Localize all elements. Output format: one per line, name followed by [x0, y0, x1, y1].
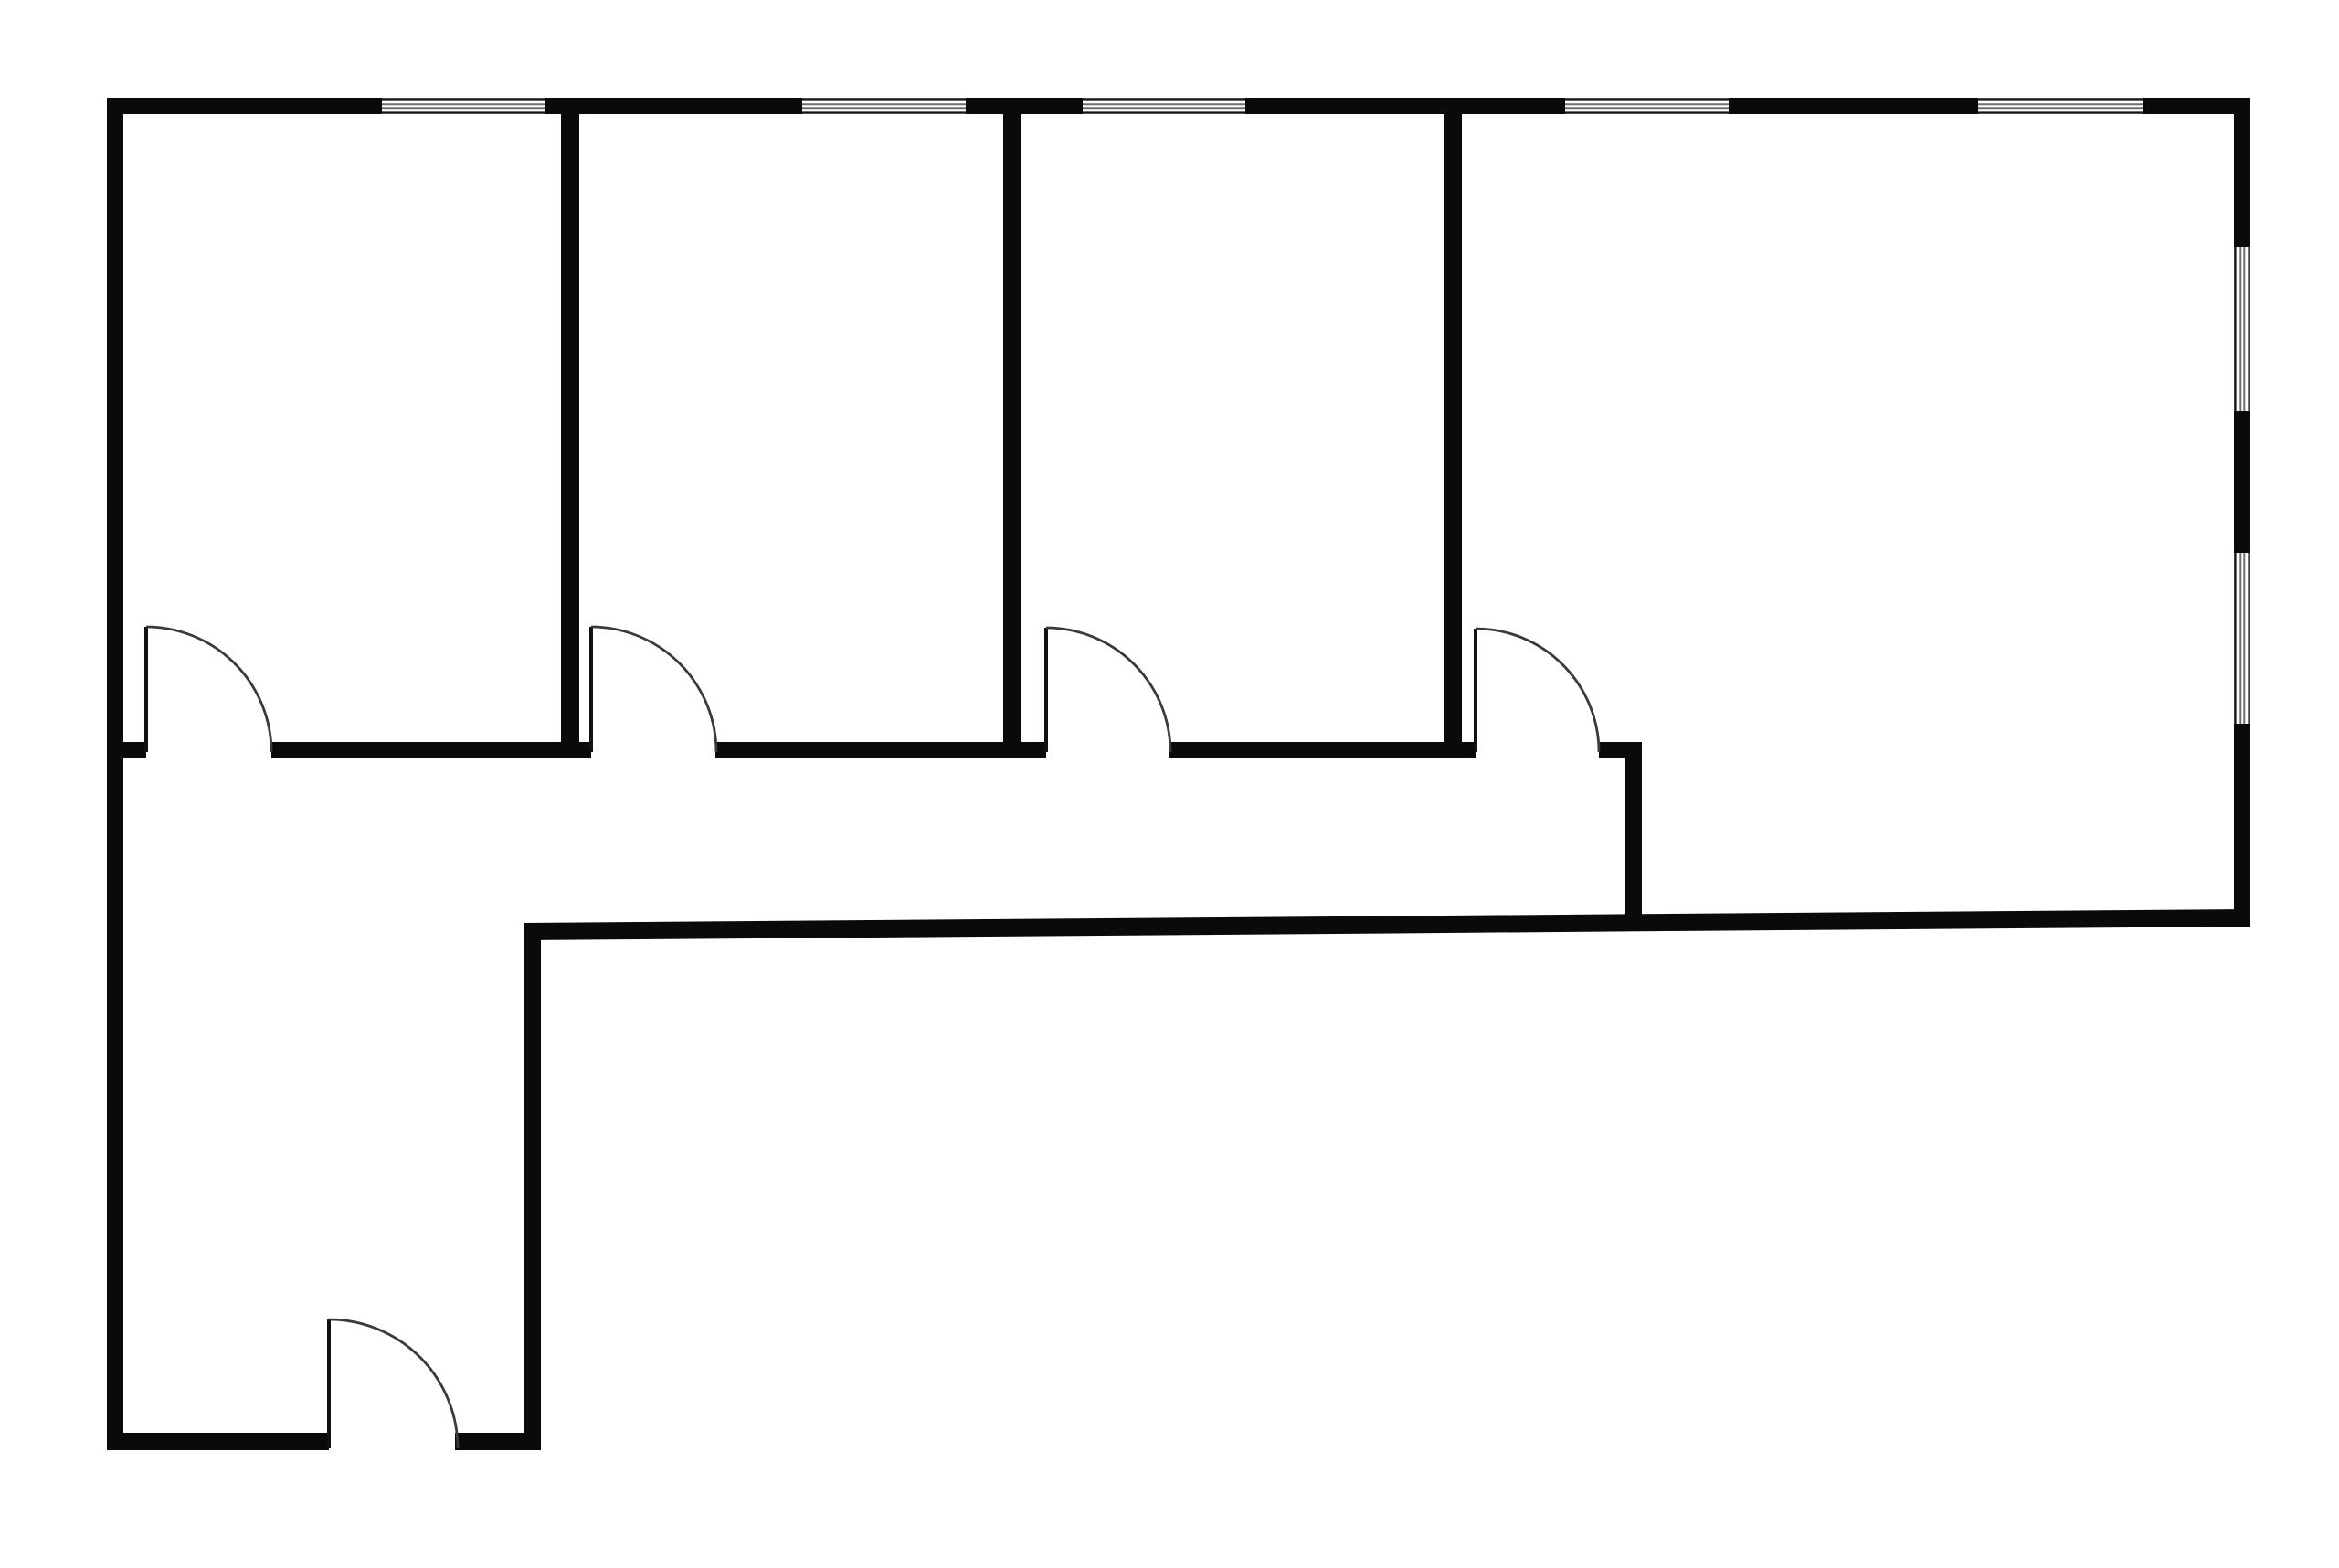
window-right-1	[2234, 247, 2250, 411]
room-divider-1	[561, 98, 579, 758]
window-top-5	[1978, 98, 2143, 114]
plan-background	[0, 0, 2339, 1568]
lower-room-right-wall	[524, 923, 541, 1450]
window-right-2	[2234, 553, 2250, 724]
corridor-top-wall-seg-4	[1169, 742, 1476, 758]
lower-room-bottom-wall-right	[455, 1433, 541, 1450]
corridor-top-wall-seg-2	[271, 742, 591, 758]
corridor-top-wall-seg-1	[107, 742, 146, 758]
right-wall	[2234, 98, 2250, 927]
lower-room-bottom-wall-left	[107, 1433, 329, 1450]
left-wall	[107, 98, 123, 1450]
floor-plan-page	[0, 0, 2339, 1568]
room-divider-3	[1444, 98, 1462, 758]
room-divider-2	[1003, 98, 1021, 758]
window-top-3	[1083, 98, 1245, 114]
window-top-1	[382, 98, 545, 114]
corridor-top-wall-seg-3	[715, 742, 1046, 758]
window-top-2	[802, 98, 966, 114]
floor-plan-canvas	[0, 0, 2339, 1568]
window-top-4	[1565, 98, 1729, 114]
corridor-step-wall	[1625, 742, 1642, 927]
